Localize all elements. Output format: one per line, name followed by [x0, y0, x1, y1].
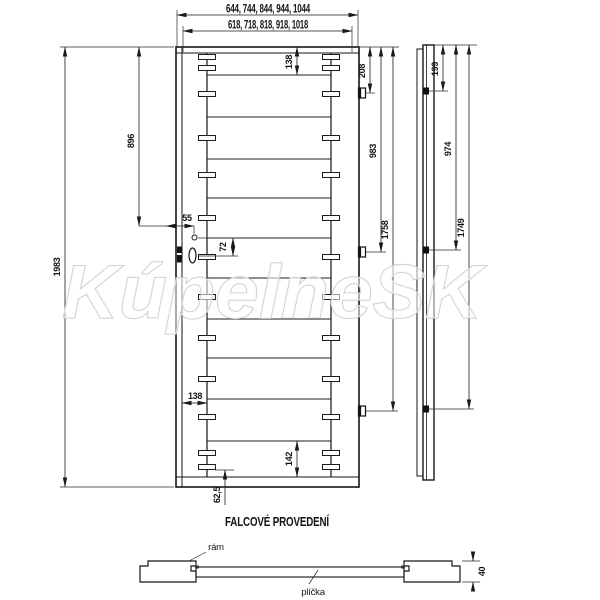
dim-outer-widths: 644, 744, 844, 944, 1044	[226, 4, 311, 16]
panel-section	[196, 567, 404, 577]
tenon-slot	[323, 377, 340, 382]
tenon-slot	[323, 66, 340, 71]
dim-hinge1-front: 208	[357, 64, 367, 78]
dim-lock-offset: 55	[182, 213, 192, 223]
tenon-slot	[199, 92, 216, 97]
watermark: KúpelneSK	[62, 250, 487, 335]
tenon-slot	[323, 92, 340, 97]
dim-leaf-widths: 618, 718, 818, 918, 1018	[228, 20, 309, 32]
groove-mark	[401, 566, 405, 569]
tenon-slot	[199, 173, 216, 178]
tenon-slot	[323, 336, 340, 341]
tenon-slot	[323, 173, 340, 178]
tenon-slot	[199, 136, 216, 141]
frame-leader-line	[189, 552, 206, 561]
dim-stile-width: 138	[188, 391, 202, 401]
dim-door-height: 1983	[52, 257, 62, 276]
door-technical-drawing: 644, 744, 844, 944, 1044 618, 718, 818, …	[0, 0, 600, 600]
dim-lock-height: 896	[126, 134, 136, 148]
dim-hinge2-side: 974	[443, 142, 453, 156]
dim-hinge1-side: 199	[430, 62, 440, 76]
dim-hinge3-front: 1758	[380, 220, 390, 239]
key-hole	[192, 235, 197, 240]
tenon-slot	[323, 136, 340, 141]
groove-mark	[195, 566, 199, 569]
tenon-slot	[199, 415, 216, 420]
tenon-slot	[199, 377, 216, 382]
tenon-slot	[323, 415, 340, 420]
tenon-slot	[199, 465, 216, 470]
hinge-mark-side	[423, 88, 429, 95]
dim-bottom-offset: 62,5	[212, 487, 222, 504]
dim-top-rail: 138	[284, 55, 294, 69]
dim-thickness: 40	[477, 567, 487, 577]
tenon-slot	[199, 216, 216, 221]
tenon-slot	[199, 55, 216, 60]
frame-label: rám	[208, 542, 224, 553]
dim-hinge3-side: 1749	[456, 218, 466, 237]
tenon-slot	[199, 336, 216, 341]
tenon-slot	[199, 66, 216, 71]
drawing-caption: FALCOVÉ PROVEDENÍ	[225, 514, 329, 529]
panel-label: plíčka	[301, 587, 326, 598]
frame-stile-right	[404, 561, 460, 582]
tenon-slot	[323, 465, 340, 470]
horizontal-section-view	[140, 561, 460, 582]
frame-stile-left	[140, 561, 196, 582]
hinge-mark-side	[423, 406, 429, 413]
tenon-slot	[323, 451, 340, 456]
hinge-pin	[359, 88, 362, 98]
tenon-slot	[323, 55, 340, 60]
dim-bottom-rail: 142	[284, 452, 294, 466]
dim-hinge2-front: 983	[368, 144, 378, 158]
hinge-pin	[359, 406, 362, 416]
tenon-slot	[323, 216, 340, 221]
tenon-slot	[199, 451, 216, 456]
